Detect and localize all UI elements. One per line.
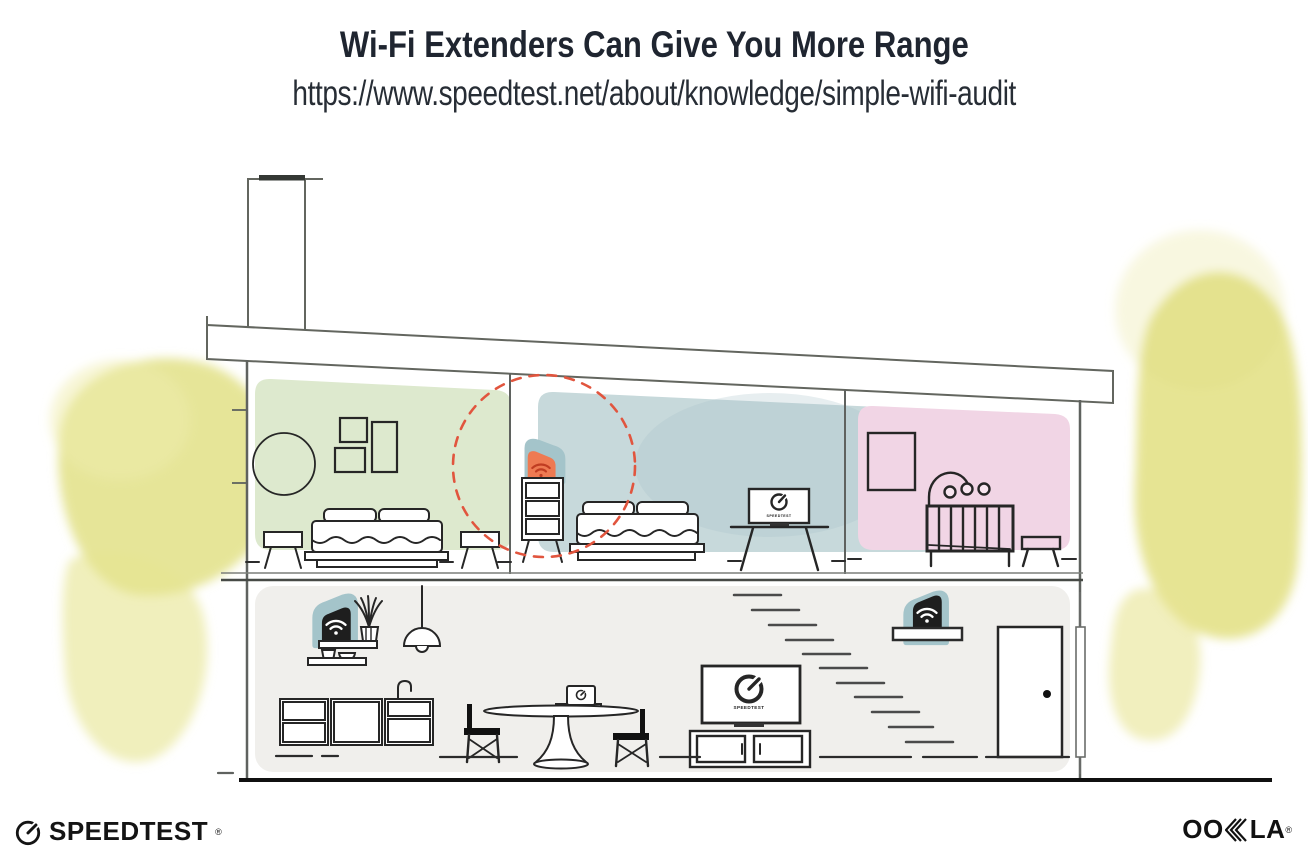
wall-shelf-upper: [319, 641, 377, 648]
foliage-right: [1109, 230, 1302, 741]
speedtest-wordmark: SPEEDTEST: [49, 816, 208, 847]
ookla-logo: OO LA®: [1182, 814, 1292, 845]
foliage-left: [50, 358, 278, 762]
living-tv-label: SPEEDTEST: [734, 705, 765, 710]
speedtest-gauge-icon: [14, 818, 42, 846]
router-assembly-left: [315, 596, 355, 645]
ookla-k-icon: [1225, 818, 1249, 842]
ookla-wordmark-oo: OO: [1182, 814, 1223, 845]
speedtest-logo: SPEEDTEST®: [14, 816, 222, 847]
ookla-wordmark-la: LA: [1250, 814, 1286, 845]
door-knob: [1043, 690, 1051, 698]
media-console: [690, 731, 810, 767]
stair-shelf: [893, 628, 962, 640]
house-illustration: SPEEDTEST: [0, 0, 1308, 861]
bedroom-tv-label: SPEEDTEST: [767, 514, 792, 518]
chimney: [247, 175, 323, 331]
laptop: [567, 686, 595, 705]
bed-green: [305, 509, 448, 567]
infographic-canvas: Wi-Fi Extenders Can Give You More Range …: [0, 0, 1308, 861]
bed-blue: [570, 502, 704, 560]
front-door: [998, 627, 1062, 757]
cup: [322, 650, 335, 658]
living-tv: [690, 666, 810, 767]
